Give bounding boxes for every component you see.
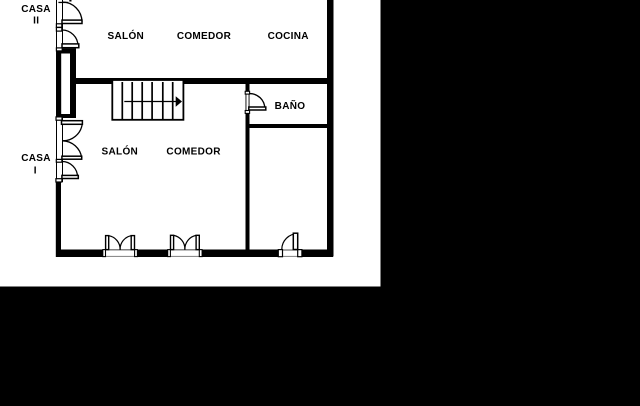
svg-text:CASA: CASA	[21, 153, 51, 164]
svg-text:CASA: CASA	[21, 4, 51, 15]
svg-text:SALÓN: SALÓN	[102, 144, 139, 157]
svg-text:COCINA: COCINA	[268, 31, 309, 42]
svg-text:COMEDOR: COMEDOR	[166, 146, 221, 157]
svg-text:SALÓN: SALÓN	[108, 29, 145, 42]
svg-text:I: I	[34, 165, 37, 176]
svg-text:COMEDOR: COMEDOR	[177, 31, 232, 42]
svg-text:BAÑO: BAÑO	[275, 99, 306, 112]
svg-text:II: II	[33, 16, 39, 27]
